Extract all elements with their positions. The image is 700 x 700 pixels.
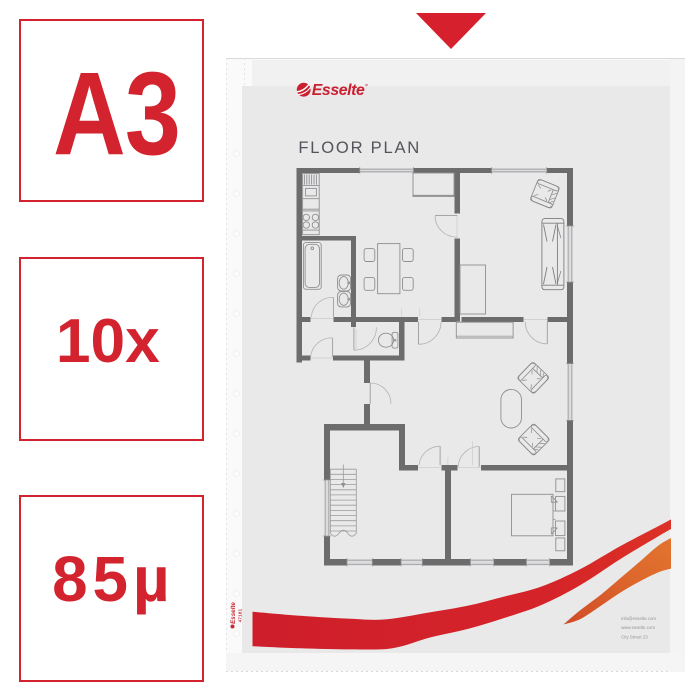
- svg-text:FLOOR PLAN: FLOOR PLAN: [298, 138, 421, 157]
- svg-text:City Street 23: City Street 23: [621, 634, 648, 639]
- svg-text:Esselte: Esselte: [311, 82, 364, 99]
- svg-text:www.esselte.com: www.esselte.com: [621, 625, 655, 630]
- svg-text:info@esselte.com: info@esselte.com: [621, 616, 656, 621]
